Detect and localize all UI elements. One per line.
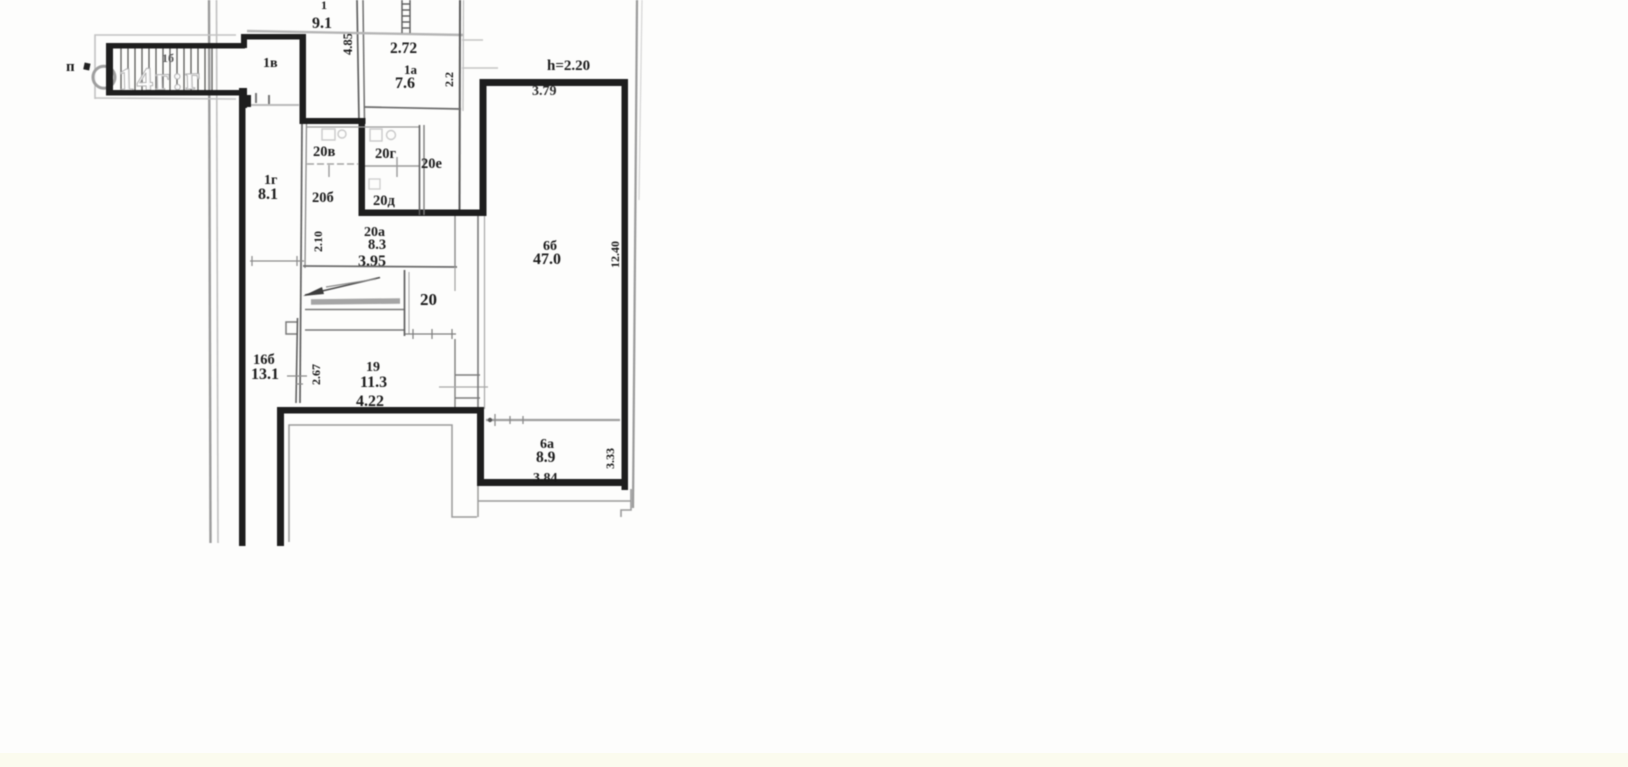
svg-text:20д: 20д: [373, 193, 396, 209]
svg-text:20: 20: [420, 290, 437, 309]
svg-text:9.1: 9.1: [312, 15, 332, 32]
svg-text:4.85: 4.85: [341, 33, 355, 55]
svg-text:20б: 20б: [312, 190, 334, 206]
svg-text:3.33: 3.33: [603, 448, 617, 469]
svg-text:20в: 20в: [313, 144, 336, 160]
svg-text:13.1: 13.1: [251, 366, 279, 383]
svg-text:1: 1: [321, 0, 327, 12]
svg-text:п: п: [66, 59, 75, 75]
svg-text:11.3: 11.3: [360, 374, 387, 391]
svg-text:20е: 20е: [421, 156, 443, 172]
svg-text:20г: 20г: [375, 146, 397, 162]
svg-text:1в: 1в: [263, 56, 278, 71]
svg-text:8.9: 8.9: [536, 449, 556, 466]
svg-text:2.67: 2.67: [309, 364, 323, 385]
svg-text:2.10: 2.10: [311, 231, 325, 252]
svg-text:47.0: 47.0: [533, 251, 561, 268]
svg-text:8.1: 8.1: [258, 186, 278, 203]
svg-text:12.40: 12.40: [608, 241, 622, 268]
svg-text:3.79: 3.79: [532, 84, 557, 99]
svg-text:3.95: 3.95: [358, 253, 386, 270]
svg-text:2.2: 2.2: [442, 72, 456, 87]
svg-text:7.6: 7.6: [395, 75, 415, 92]
svg-text:19: 19: [366, 360, 380, 375]
svg-text:2.72: 2.72: [390, 40, 417, 57]
svg-text:h=2.20: h=2.20: [547, 58, 590, 74]
svg-text:3.84: 3.84: [533, 471, 558, 486]
svg-text:8.3: 8.3: [368, 237, 386, 253]
